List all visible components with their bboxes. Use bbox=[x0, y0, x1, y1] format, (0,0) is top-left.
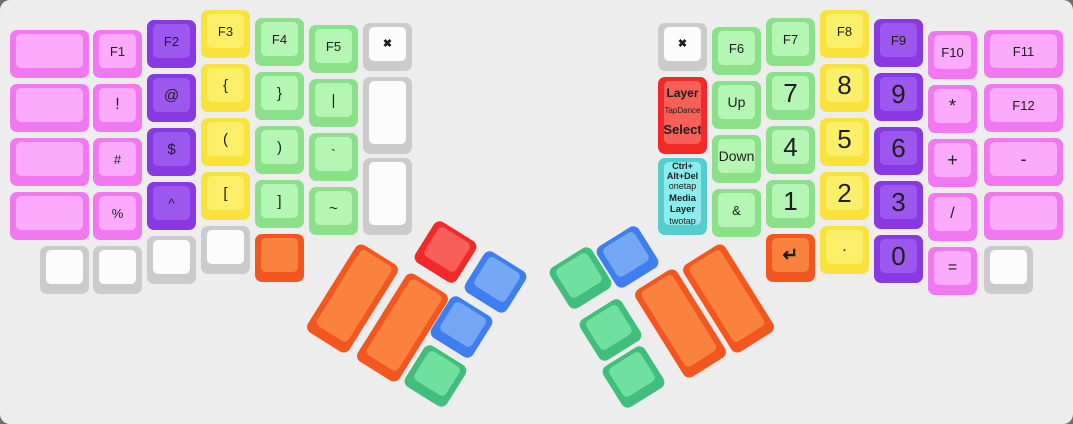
key-legend: Layer bbox=[666, 87, 698, 100]
key-backtick[interactable]: ` bbox=[309, 133, 358, 181]
key-3[interactable]: 3 bbox=[874, 181, 923, 229]
key-legend: Ctrl+ bbox=[672, 162, 693, 171]
keyboard-layout-canvas: F1!#%F2@$^F3{([F4})]F5|`~✖✖LayerTapDance… bbox=[0, 0, 1073, 424]
key-bracket-close[interactable]: ] bbox=[255, 180, 304, 228]
keycap-top: F10 bbox=[934, 35, 971, 69]
key-blank-r7-bottom[interactable] bbox=[984, 246, 1033, 294]
key-legend: 5 bbox=[837, 126, 851, 152]
key-legend: F4 bbox=[272, 33, 287, 46]
key-f5[interactable]: F5 bbox=[309, 25, 358, 73]
key-paren-close[interactable]: ) bbox=[255, 126, 304, 174]
keycap-top bbox=[584, 303, 633, 351]
key-f9[interactable]: F9 bbox=[874, 19, 923, 67]
key-4[interactable]: 4 bbox=[766, 126, 815, 174]
key-f7[interactable]: F7 bbox=[766, 18, 815, 66]
key-paren-open[interactable]: ( bbox=[201, 118, 250, 166]
key-legend: F11 bbox=[1013, 45, 1034, 58]
key-6[interactable]: 6 bbox=[874, 127, 923, 175]
key-legend: F3 bbox=[218, 25, 233, 38]
key-legend: $ bbox=[167, 142, 175, 157]
key-blank-l1-r2[interactable] bbox=[10, 84, 89, 132]
keycap-top bbox=[207, 230, 244, 264]
key-legend: F9 bbox=[891, 34, 906, 47]
key-legend: @ bbox=[164, 88, 179, 103]
keycap-top: F9 bbox=[880, 23, 917, 57]
keycap-top: F8 bbox=[826, 14, 863, 48]
key-legend: twotap bbox=[669, 216, 696, 225]
key-legend: 0 bbox=[891, 243, 905, 269]
key-legend: ! bbox=[115, 97, 119, 113]
keycap-top bbox=[990, 250, 1027, 284]
keycap-top: F3 bbox=[207, 14, 244, 48]
key-period[interactable]: . bbox=[820, 226, 869, 274]
key-legend: 7 bbox=[783, 80, 797, 106]
key-f10[interactable]: F10 bbox=[928, 31, 977, 79]
keycap-top: & bbox=[718, 193, 755, 227]
key-legend: Layer bbox=[670, 205, 695, 216]
key-legend: [ bbox=[223, 186, 227, 201]
key-f3[interactable]: F3 bbox=[201, 10, 250, 58]
keycap-top bbox=[261, 238, 298, 272]
key-legend: ` bbox=[331, 147, 336, 161]
key-asterisk[interactable]: * bbox=[928, 85, 977, 133]
key-legend: F6 bbox=[729, 42, 744, 55]
key-caret[interactable]: ^ bbox=[147, 182, 196, 230]
keycap-top bbox=[438, 300, 487, 348]
keycap-top bbox=[369, 81, 406, 144]
keycap-top: % bbox=[99, 196, 136, 230]
keycap-top: F11 bbox=[990, 34, 1057, 68]
key-blank-tall-2[interactable] bbox=[363, 158, 412, 235]
key-percent[interactable]: % bbox=[93, 192, 142, 240]
key-minus[interactable]: - bbox=[984, 138, 1063, 186]
key-7[interactable]: 7 bbox=[766, 72, 815, 120]
key-legend: ↵ bbox=[783, 246, 799, 265]
key-legend: + bbox=[947, 151, 958, 169]
keycap-top: LayerTapDanceSelect bbox=[664, 81, 701, 144]
key-legend: TapDance bbox=[664, 107, 700, 116]
keycap-top: F12 bbox=[990, 88, 1057, 122]
key-f6[interactable]: F6 bbox=[712, 27, 761, 75]
key-legend: ✖ bbox=[383, 39, 392, 50]
key-legend: ~ bbox=[329, 201, 338, 216]
key-legend: . bbox=[842, 239, 846, 255]
keycap-top: # bbox=[99, 142, 136, 176]
key-legend: Alt+Del bbox=[667, 171, 698, 181]
key-legend: 9 bbox=[891, 81, 905, 107]
key-exclamation[interactable]: ! bbox=[93, 84, 142, 132]
key-8[interactable]: 8 bbox=[820, 64, 869, 112]
keycap-top: F6 bbox=[718, 31, 755, 65]
key-legend: ( bbox=[223, 132, 228, 147]
key-legend: 6 bbox=[891, 135, 905, 161]
key-brace-close[interactable]: } bbox=[255, 72, 304, 120]
key-legend: F10 bbox=[941, 46, 963, 59]
keycap-top: F4 bbox=[261, 22, 298, 56]
keycap-top bbox=[16, 34, 83, 68]
key-legend: } bbox=[277, 86, 282, 101]
keycap-top: 4 bbox=[772, 130, 809, 164]
keycap-top: Up bbox=[718, 85, 755, 119]
key-close-right[interactable]: ✖ bbox=[658, 23, 707, 71]
keycap-top: ` bbox=[315, 137, 352, 171]
keycap-top: = bbox=[934, 251, 971, 285]
key-f1[interactable]: F1 bbox=[93, 30, 142, 78]
key-blank-tall-1[interactable] bbox=[363, 77, 412, 154]
key-legend: - bbox=[1021, 150, 1027, 168]
key-blank-l1-r4[interactable] bbox=[10, 192, 89, 240]
key-1[interactable]: 1 bbox=[766, 180, 815, 228]
key-legend: / bbox=[950, 206, 954, 222]
keycap-top bbox=[554, 251, 603, 299]
key-plus[interactable]: + bbox=[928, 139, 977, 187]
key-hash[interactable]: # bbox=[93, 138, 142, 186]
key-f12[interactable]: F12 bbox=[984, 84, 1063, 132]
keycap-top: / bbox=[934, 197, 971, 231]
key-legend: F2 bbox=[164, 35, 179, 48]
keycap-top bbox=[472, 255, 521, 303]
keycap-top bbox=[412, 349, 461, 397]
key-legend: * bbox=[949, 97, 956, 115]
key-legend: = bbox=[948, 260, 957, 276]
key-legend: Select bbox=[664, 123, 701, 138]
keycap-top bbox=[16, 142, 83, 176]
key-ctrl-alt-del-media-layer[interactable]: Ctrl+Alt+DelonetapMediaLayertwotap bbox=[658, 158, 707, 235]
keycap-top: 3 bbox=[880, 185, 917, 219]
key-blank-orange-left[interactable] bbox=[255, 234, 304, 282]
key-bracket-open[interactable]: [ bbox=[201, 172, 250, 220]
key-close-left[interactable]: ✖ bbox=[363, 23, 412, 71]
keycap-top: F5 bbox=[315, 29, 352, 63]
keycap-top bbox=[422, 225, 471, 273]
key-legend: 4 bbox=[783, 134, 797, 160]
keycap-top: [ bbox=[207, 176, 244, 210]
keycap-top bbox=[153, 240, 190, 274]
key-legend: F7 bbox=[783, 33, 798, 46]
key-5[interactable]: 5 bbox=[820, 118, 869, 166]
keycap-top: | bbox=[315, 83, 352, 117]
key-legend: { bbox=[223, 78, 228, 93]
keycap-top bbox=[16, 196, 83, 230]
keycap-top bbox=[99, 250, 136, 284]
key-legend: Down bbox=[719, 149, 755, 163]
key-legend: % bbox=[112, 207, 124, 220]
key-f8[interactable]: F8 bbox=[820, 10, 869, 58]
key-thumb-l-red[interactable] bbox=[412, 219, 479, 286]
keycap-top: Down bbox=[718, 139, 755, 173]
keycap-top: 8 bbox=[826, 68, 863, 102]
key-pipe[interactable]: | bbox=[309, 79, 358, 127]
keycap-top: 1 bbox=[772, 184, 809, 218]
keycap-top: F1 bbox=[99, 34, 136, 68]
keycap-top bbox=[990, 196, 1057, 230]
key-2[interactable]: 2 bbox=[820, 172, 869, 220]
keycap-top bbox=[607, 350, 656, 398]
key-9[interactable]: 9 bbox=[874, 73, 923, 121]
key-f4[interactable]: F4 bbox=[255, 18, 304, 66]
keycap-top: 0 bbox=[880, 239, 917, 273]
keycap-top bbox=[46, 250, 83, 284]
keycap-top: ) bbox=[261, 130, 298, 164]
keycap-top: 5 bbox=[826, 122, 863, 156]
keycap-top: F7 bbox=[772, 22, 809, 56]
keycap-top: } bbox=[261, 76, 298, 110]
keycap-top: ✖ bbox=[369, 27, 406, 61]
key-legend: 1 bbox=[783, 188, 797, 214]
keycap-top: F2 bbox=[153, 24, 190, 58]
key-at[interactable]: @ bbox=[147, 74, 196, 122]
keycap-top: ↵ bbox=[772, 238, 809, 272]
keycap-top: - bbox=[990, 142, 1057, 176]
keycap-top: $ bbox=[153, 132, 190, 166]
key-tilde[interactable]: ~ bbox=[309, 187, 358, 235]
keycap-top: ( bbox=[207, 122, 244, 156]
keycap-top bbox=[601, 230, 650, 278]
keycap-top: 6 bbox=[880, 131, 917, 165]
key-brace-open[interactable]: { bbox=[201, 64, 250, 112]
key-blank-l3-bottom[interactable] bbox=[147, 236, 196, 284]
key-legend: F8 bbox=[837, 25, 852, 38]
key-legend: 8 bbox=[837, 72, 851, 98]
key-slash[interactable]: / bbox=[928, 193, 977, 241]
key-legend: ] bbox=[277, 194, 281, 209]
key-equals[interactable]: = bbox=[928, 247, 977, 295]
keycap-top: . bbox=[826, 230, 863, 264]
keycap-top: ] bbox=[261, 184, 298, 218]
keycap-top: ! bbox=[99, 88, 136, 122]
keycap-top: @ bbox=[153, 78, 190, 112]
key-blank-l1-r1[interactable] bbox=[10, 30, 89, 78]
key-legend: Up bbox=[728, 95, 746, 109]
keycap-top: ^ bbox=[153, 186, 190, 220]
key-f2[interactable]: F2 bbox=[147, 20, 196, 68]
key-blank-l1-bottom[interactable] bbox=[40, 246, 89, 294]
keycap-top: ~ bbox=[315, 191, 352, 225]
key-enter[interactable]: ↵ bbox=[766, 234, 815, 282]
key-ampersand[interactable]: & bbox=[712, 189, 761, 237]
key-layer-tapdance-select[interactable]: LayerTapDanceSelect bbox=[658, 77, 707, 154]
key-legend: F12 bbox=[1012, 99, 1034, 112]
keycap-top bbox=[369, 162, 406, 225]
key-blank-l1-r3[interactable] bbox=[10, 138, 89, 186]
key-dollar[interactable]: $ bbox=[147, 128, 196, 176]
key-legend: ✖ bbox=[678, 39, 687, 50]
keycap-top: 9 bbox=[880, 77, 917, 111]
keycap-top bbox=[16, 88, 83, 122]
key-legend: 3 bbox=[891, 189, 905, 215]
key-down[interactable]: Down bbox=[712, 135, 761, 183]
keycap-top: 7 bbox=[772, 76, 809, 110]
key-legend: | bbox=[332, 93, 336, 108]
key-legend: ^ bbox=[168, 197, 174, 210]
key-blank-r7[interactable] bbox=[984, 192, 1063, 240]
keycap-top: { bbox=[207, 68, 244, 102]
keycap-top: 2 bbox=[826, 176, 863, 210]
key-blank-l2-bottom[interactable] bbox=[93, 246, 142, 294]
keycap-top: * bbox=[934, 89, 971, 123]
key-legend: 2 bbox=[837, 180, 851, 206]
key-legend: # bbox=[114, 153, 121, 166]
key-legend: F5 bbox=[326, 40, 341, 53]
keycap-top: ✖ bbox=[664, 27, 701, 61]
key-blank-l4-bottom[interactable] bbox=[201, 226, 250, 274]
keycap-top: + bbox=[934, 143, 971, 177]
key-legend: onetap bbox=[669, 181, 697, 191]
key-up[interactable]: Up bbox=[712, 81, 761, 129]
keycap-top: Ctrl+Alt+DelonetapMediaLayertwotap bbox=[664, 162, 701, 225]
key-0[interactable]: 0 bbox=[874, 235, 923, 283]
key-legend: F1 bbox=[110, 45, 125, 58]
key-legend: ) bbox=[277, 140, 282, 155]
key-legend: & bbox=[732, 204, 741, 217]
key-f11[interactable]: F11 bbox=[984, 30, 1063, 78]
